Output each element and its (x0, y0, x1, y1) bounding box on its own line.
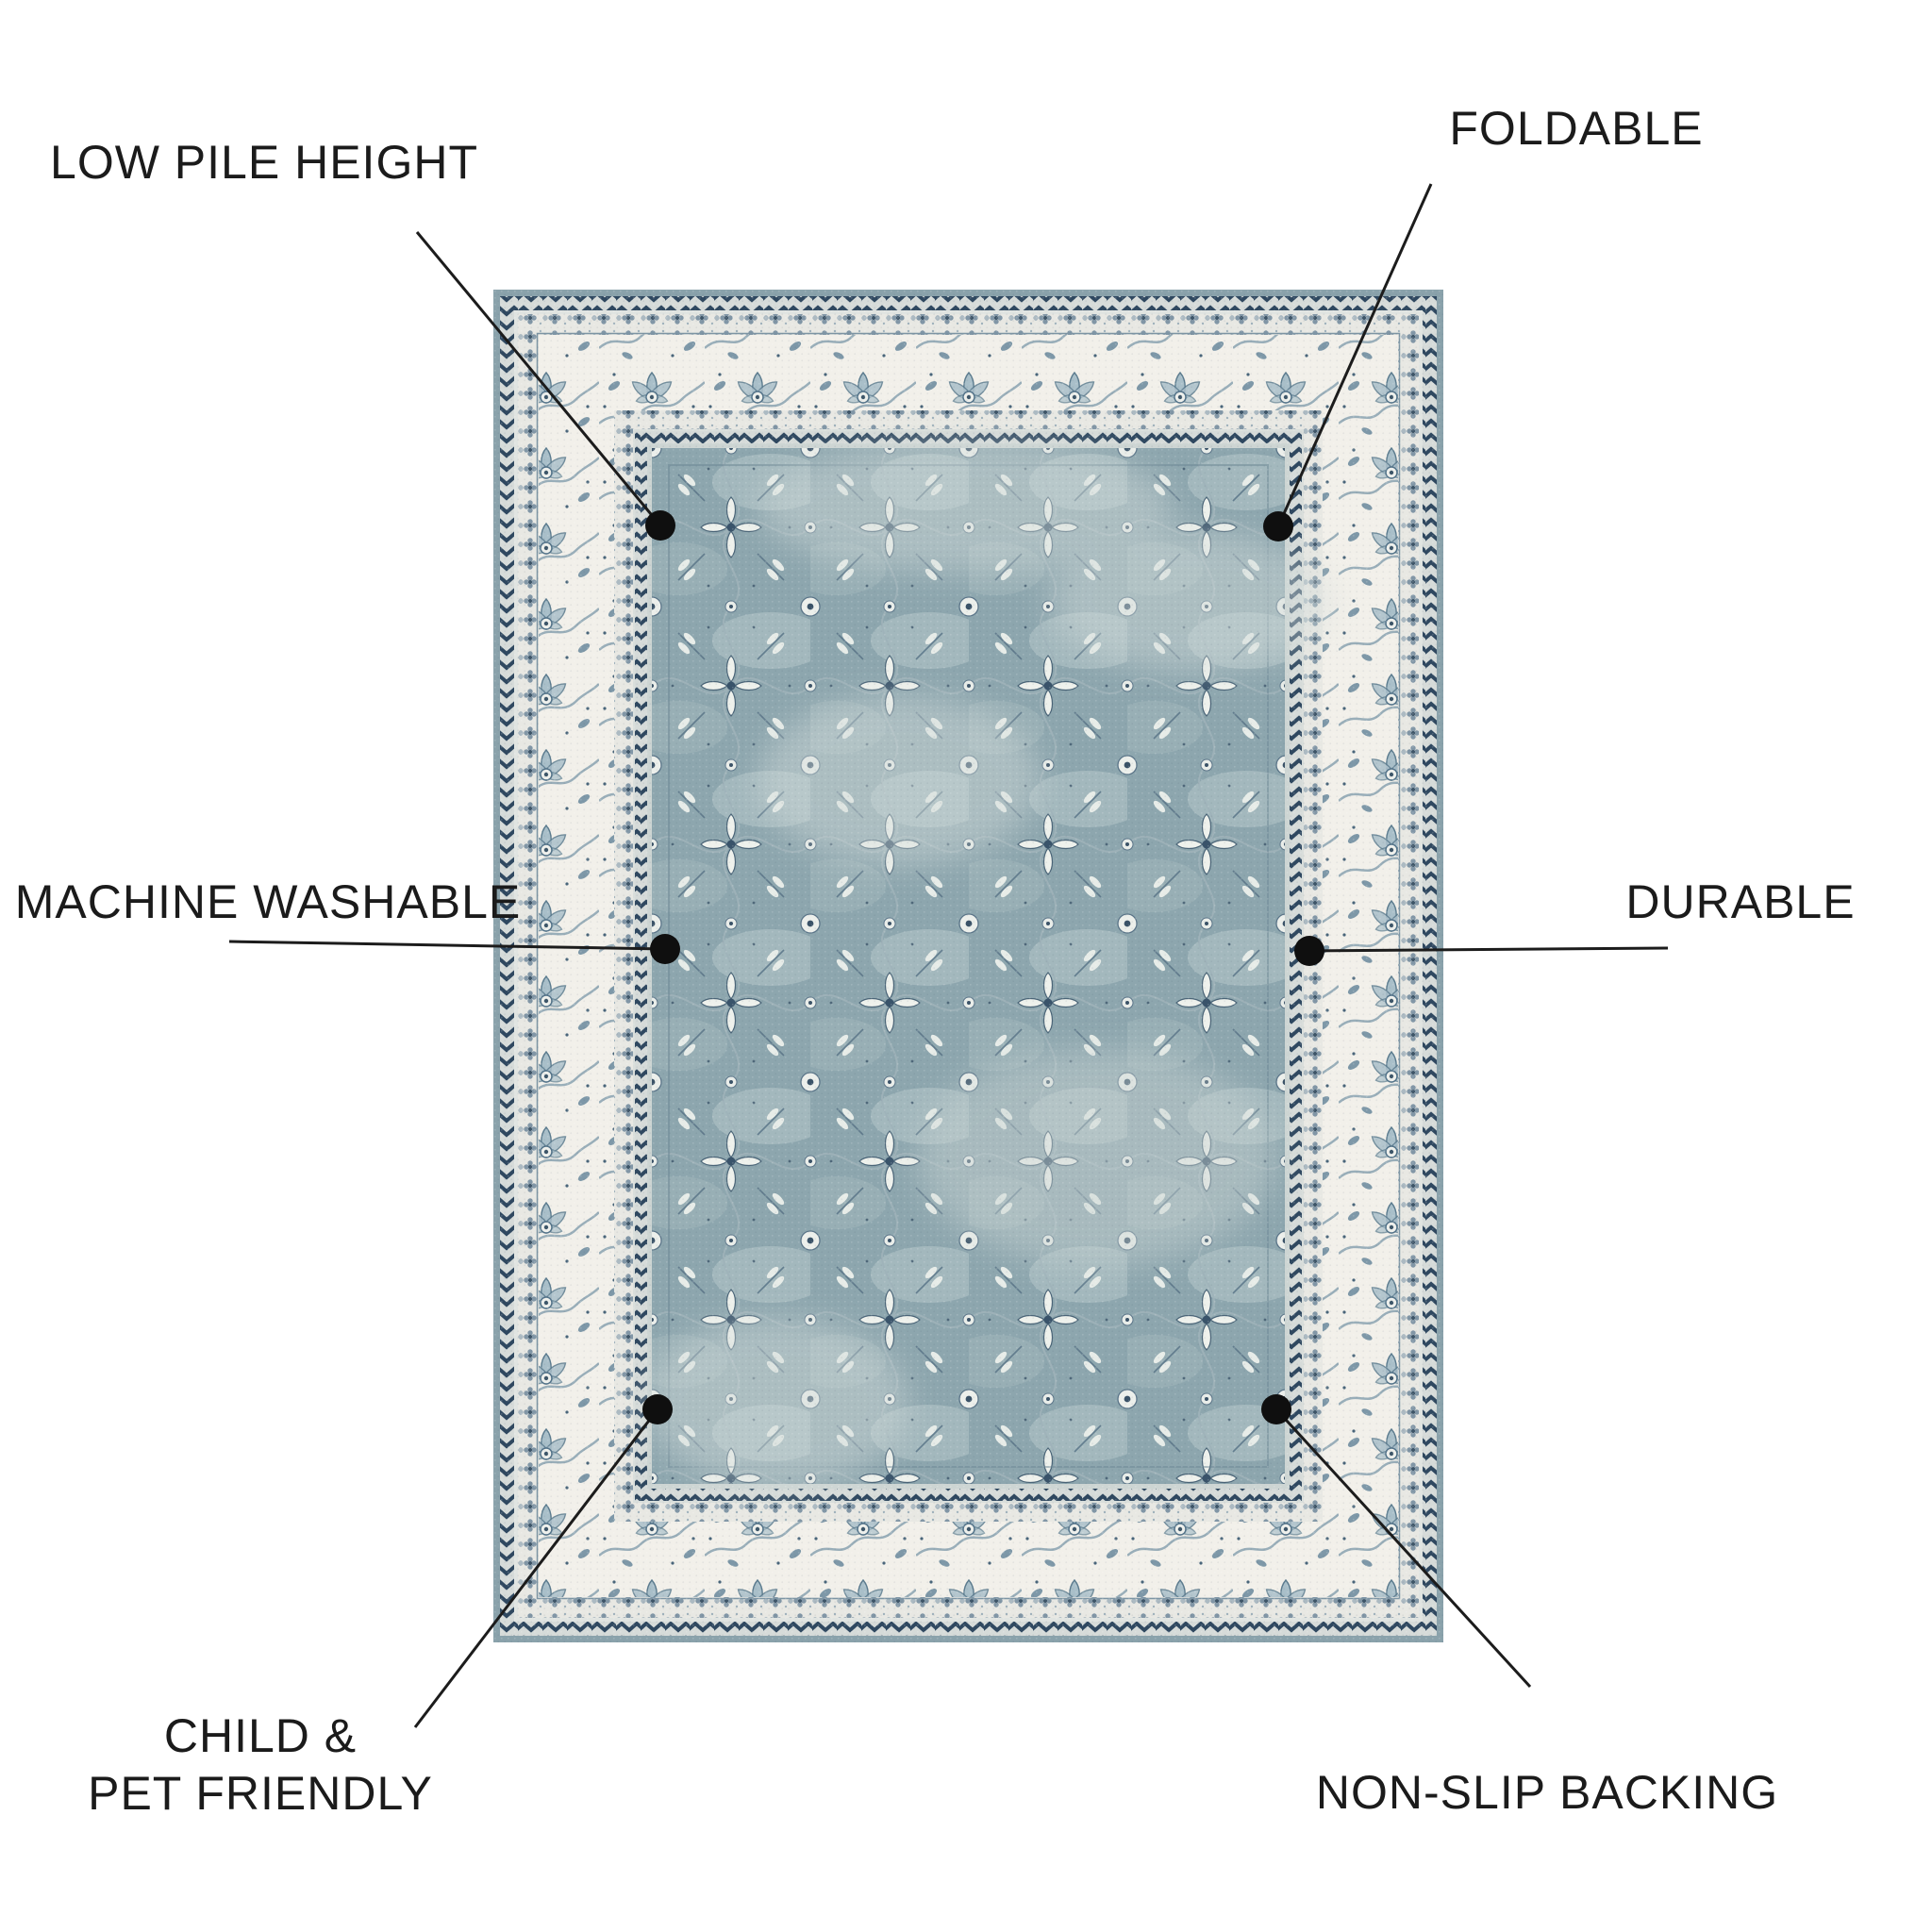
feature-label-child-pet-friendly: CHILD & PET FRIENDLY (88, 1707, 433, 1823)
feature-label-non-slip-backing: NON-SLIP BACKING (1316, 1764, 1778, 1822)
feature-label-text: DURABLE (1625, 874, 1855, 931)
feature-label-foldable: FOLDABLE (1449, 100, 1703, 158)
feature-label-durable: DURABLE (1625, 874, 1855, 931)
feature-label-machine-washable: MACHINE WASHABLE (15, 874, 521, 931)
feature-label-text: FOLDABLE (1449, 100, 1703, 158)
infographic-canvas: LOW PILE HEIGHT FOLDABLE MACHINE WASHABL… (0, 0, 1932, 1932)
feature-label-text-line1: CHILD & (88, 1707, 433, 1765)
feature-label-text: LOW PILE HEIGHT (50, 134, 478, 192)
rug-image (493, 290, 1443, 1642)
feature-label-low-pile-height: LOW PILE HEIGHT (50, 134, 478, 192)
feature-label-text: MACHINE WASHABLE (15, 874, 521, 931)
rug-graphic (493, 290, 1443, 1642)
feature-label-text: NON-SLIP BACKING (1316, 1764, 1778, 1822)
feature-label-text-line2: PET FRIENDLY (88, 1765, 433, 1823)
